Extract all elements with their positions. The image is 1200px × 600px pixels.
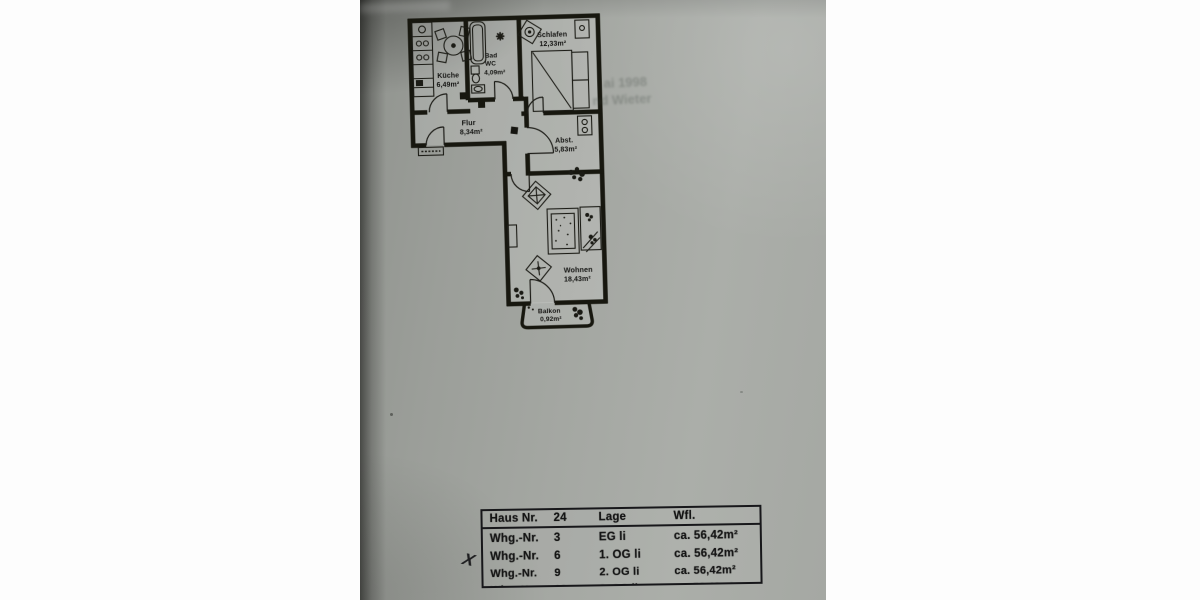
row-lage: 1. OG li (599, 548, 674, 561)
row-number: 3 (554, 531, 599, 544)
apartment-table: Haus Nr. 24 Lage Wfl. Whg.-Nr. 3 EG li c… (480, 505, 762, 588)
room-label-flur: Flur (461, 118, 475, 127)
row-wfl: ca. 56,42m² (674, 528, 760, 541)
row-lage: 3. OG li (600, 581, 675, 589)
row-wfl: ca. 56,42m² (674, 564, 760, 577)
room-area-wohnen: 18,43m² (564, 276, 592, 284)
paper-speck (740, 391, 743, 393)
paper-speck (390, 413, 393, 416)
header-haus-nr: Haus Nr. (489, 512, 553, 525)
room-area-schlafen: 12,33m² (539, 40, 567, 48)
room-label-abst: Abst. (555, 137, 573, 144)
row-lage: EG li (599, 530, 674, 543)
document-photo: Küche 6,49m² Bad WC 4,09m² Schlafen 12,3… (360, 0, 826, 600)
row-lage: 2. OG li (599, 565, 674, 578)
room-label-kueche: Küche (437, 72, 459, 80)
photo-left-shadow (360, 0, 386, 600)
row-wfl: ca. 56,42m² (675, 579, 761, 588)
row-label: Whg.-Nr. (490, 532, 554, 545)
room-area-kueche: 6,49m² (436, 81, 460, 89)
plant-icon (497, 33, 504, 40)
floorplan-drawing: Küche 6,49m² Bad WC 4,09m² Schlafen 12,3… (400, 3, 624, 341)
room-area-abst: 5,83m² (554, 146, 578, 154)
row-wfl: ca. 56,42m² (674, 547, 760, 560)
row-label: Whg.-Nr. (490, 550, 554, 563)
header-wfl: Wfl. (673, 509, 759, 522)
room-area-flur: 8,34m² (460, 129, 484, 137)
room-label-balkon: Balkon (538, 308, 561, 316)
row-number: 9 (554, 566, 599, 579)
room-label-wc: WC (485, 60, 496, 67)
room-label-bad: Bad (485, 52, 498, 59)
row-label: Whg.-Nr. (491, 583, 555, 589)
room-label-schlafen: Schlafen (537, 31, 567, 39)
handwritten-x-mark: X (458, 550, 480, 571)
bleed-line-1: ai 1998 (603, 73, 651, 92)
header-number: 24 (553, 511, 598, 524)
room-label-wohnen: Wohnen (564, 265, 593, 275)
bleed-through-text: ai 1998 nd Wieter (591, 73, 652, 110)
bleed-line-2: nd Wieter (592, 90, 652, 110)
row-number: 6 (554, 549, 599, 562)
row-label: Whg.-Nr. (490, 567, 554, 580)
header-lage: Lage (598, 510, 673, 523)
row-number: 12 (555, 582, 600, 588)
room-area-balkon: 0,92m² (540, 316, 562, 324)
room-area-bad: 4,09m² (484, 69, 506, 77)
